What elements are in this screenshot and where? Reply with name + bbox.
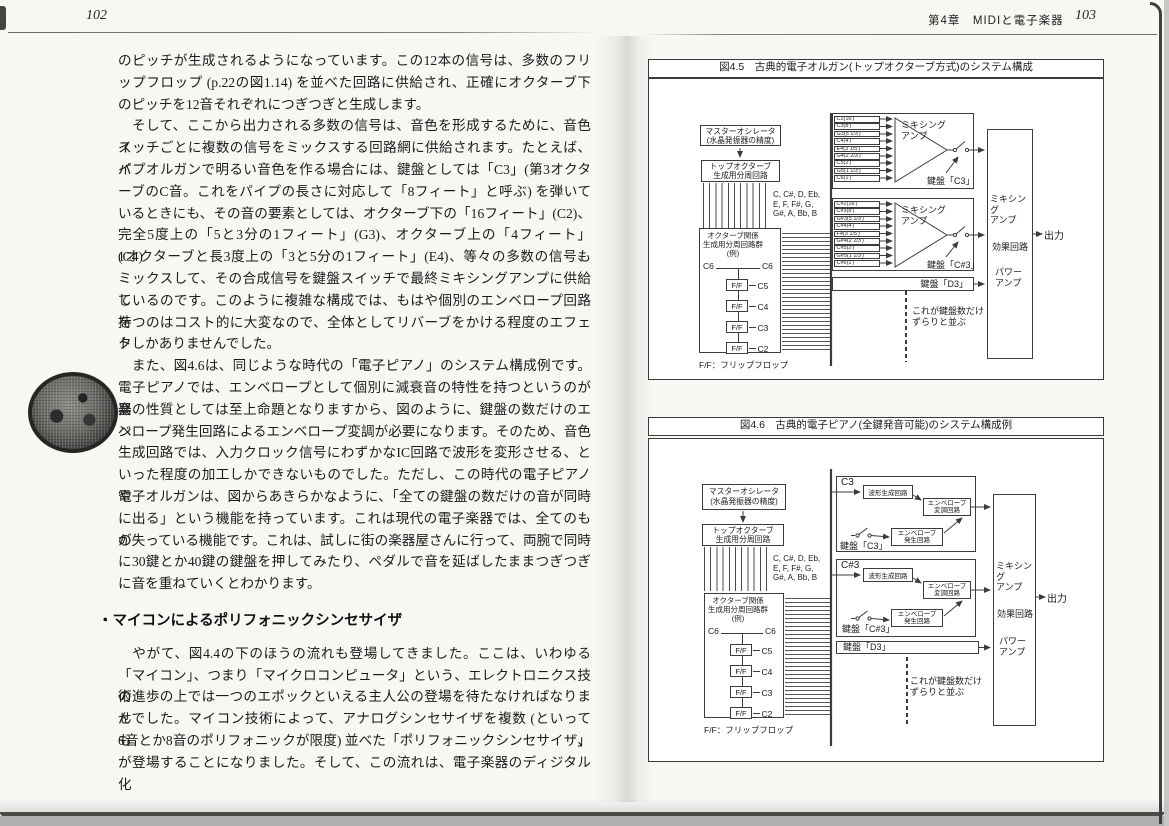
text-line: そして、ここから出力される多数の信号は、音色を形成するために、音色ス [118, 115, 591, 137]
header-rule-left [8, 32, 598, 33]
text-line: んでした。マイコン技術によって、アナログシンセサイザを複数 (といっても、 [118, 708, 591, 730]
master-oscillator-box: マスターオシレータ (水晶発振器の精度) [702, 484, 786, 510]
output-chain-box: ミキシング アンプ 効果回路 パワー アンプ [987, 129, 1033, 359]
signal-box: G#3(5 1/3′) [834, 216, 880, 223]
text-line: ベロープ発生回路によるエンベロープ変調が必要になります。そのため、音色 [118, 421, 591, 443]
effects-label: 効果回路 [992, 240, 1028, 253]
text-line: また、図4.6は、同じような時代の「電子ピアノ」のシステム構成例です。 [118, 355, 591, 377]
scanner-bed-bottom [0, 816, 1169, 826]
signal-box: C#3(8′) [834, 208, 880, 215]
chapter-header: 第4章 MIDIと電子楽器 [928, 12, 1064, 28]
signal-box: G5(1 1/3′) [834, 168, 880, 175]
page-bottom-fade [0, 799, 1169, 812]
fig46-title: 図4.6 古典的電子ピアノ(全鍵発音可能)のシステム構成例 [648, 417, 1104, 436]
flipflop-box: F/F [730, 686, 752, 698]
paragraph-2: そして、ここから出力される多数の信号は、音色を形成するために、音色スイッチごとに… [118, 115, 591, 355]
flipflop-box: F/F [726, 342, 748, 354]
fig45-title: 図4.5 古典的電子オルガン(トップオクターブ方式)のシステム構成 [648, 59, 1104, 78]
signal-box: C3(8′) [834, 123, 880, 130]
text-line: ミックスして、その合成信号を鍵盤スイッチで最終ミキシングアンプに供給し [118, 268, 591, 290]
fig45-frame: マスターオシレータ (水晶発振器の精度) トップオクターブ 生成用分周回路 C,… [648, 78, 1104, 380]
octave-divider-group-box: オクターブ関係 生成用分周回路群 (例) C6 C6 F/F C5 F/F C4… [704, 593, 784, 718]
ff-note: C4 [762, 667, 773, 677]
mixing-amp-label: ミキシング アンプ [990, 194, 1032, 226]
signal-box: E4(3 1/5′) [834, 146, 880, 153]
body-text-column: のピッチが生成されるようになっています。この12本の信号は、多数のフリップフロッ… [118, 50, 591, 774]
mixer2-signal-list: C#2(16′)C#3(8′)G#3(5 1/3′)C#4(4′)F4(3 1/… [834, 201, 880, 268]
text-line: 持つのはコスト的に大変なので、全体としてリバーブをかける程度のエフェク [118, 312, 591, 334]
signal-box: C5(2′) [834, 160, 880, 167]
text-line: に出る」という機能を持っています。これは現代の電子楽器では、全てのもの [118, 508, 591, 530]
ff-top-note: C6 [708, 626, 719, 636]
ff-note: C5 [758, 281, 769, 291]
waveform-gen-box: 波形生成回路 [863, 568, 913, 582]
voice1-note-label: C3 [839, 477, 856, 488]
ff-note: C5 [762, 646, 773, 656]
signal-box: G4(2 2/3′) [834, 153, 880, 160]
ff-note: C3 [762, 688, 773, 698]
section-heading: ・マイコンによるポリフォニックシンセサイザ [98, 611, 591, 633]
signal-box: F4(3 1/5′) [834, 231, 880, 238]
paragraph-3: また、図4.6は、同じような時代の「電子ピアノ」のシステム構成例です。電子ピアノ… [118, 355, 591, 595]
flipflop-box: F/F [726, 300, 748, 312]
mixing-amp-label: ミキシング アンプ [996, 561, 1035, 593]
repeat-note-label: これが鍵盤数だけ ずらりと並ぶ [910, 676, 982, 698]
page-right-edge [1150, 2, 1162, 824]
envelope-gen-box: エンベロープ 発生回路 [891, 528, 943, 546]
text-line: やがて、図4.4の下のほうの流れも登場してきました。ここは、いわゆる [118, 643, 591, 665]
signal-box: C#5(2′) [834, 245, 880, 252]
text-line: 生成回路では、入力クロック信号にわずかなIC回路で波形を変形させる、と [118, 442, 591, 464]
ff-note: C4 [758, 302, 769, 312]
text-line: 電子ピアノでは、エンベロープとして個別に減衰音の特性を持つというのが楽 [118, 377, 591, 399]
note-names-label: C, C#, D, Eb, E, F, F#, G, G#, A, Bb, B [772, 554, 821, 583]
text-line: 器の性質としては至上命題となりますから、図のように、鍵盤の数だけのエン [118, 399, 591, 421]
voice1-key-label: 鍵盤「C3」 [840, 539, 888, 552]
flipflop-box: F/F [730, 707, 752, 719]
signal-box: C#6(1′) [834, 260, 880, 267]
fig46-frame: マスターオシレータ (水晶発振器の精度) トップオクターブ 生成用分周回路 C,… [648, 438, 1104, 762]
header-rule-right [645, 34, 1157, 35]
book-scan: { "left_page": { "page_number": "102", "… [0, 0, 1169, 826]
text-line: に30鍵とか40鍵の鍵盤を押してみたり、ペダルで音を延ばしたままつぎつぎ [118, 551, 591, 573]
text-line: が登場することになりました。そして、この流れは、電子楽器のディジタル化 [118, 752, 591, 774]
page-number-left: 102 [86, 8, 107, 24]
scan-corner-mark [0, 6, 6, 30]
text-line: が失っている機能です。これは、試しに街の楽器屋さんに行って、両腕で同時 [118, 530, 591, 552]
voice2-key-label: 鍵盤「C#3」 [842, 622, 895, 635]
signal-box: G#5(1 1/3′) [834, 253, 880, 260]
envelope-mod-box: エンベロープ 変調回路 [923, 498, 971, 516]
signal-box: G3(5 1/3′) [834, 131, 880, 138]
power-amp-label: パワー アンプ [999, 636, 1026, 657]
page-number-right: 103 [1075, 8, 1096, 24]
flipflop-box: F/F [726, 321, 748, 333]
text-line: トしかありませんでした。 [118, 333, 591, 355]
text-line: 完全5度上の「5と3分の1フィート」(G3)、オクターブ上の「4フィート」(C4… [118, 224, 591, 246]
signal-box: C#4(4′) [834, 223, 880, 230]
top-octave-divider-box: トップオクターブ 生成用分周回路 [702, 524, 784, 546]
text-line: 「マイコン」、つまり「マイクロコンピュータ」という、エレクトロニクス技術 [118, 665, 591, 687]
note-names-label: C, C#, D, Eb, E, F, F#, G, G#, A, Bb, B [772, 190, 821, 219]
text-line: いった程度の加工しかできないものでした。ただし、この時代の電子ピアノや [118, 464, 591, 486]
text-line: に音を重ねていくとわかります。 [118, 573, 591, 595]
master-oscillator-box: マスターオシレータ (水晶発振器の精度) [700, 125, 781, 146]
text-line: ップフロップ (p.22の図1.14) を並べた回路に供給され、正確にオクターブ… [118, 72, 591, 94]
text-line: 6音とか8音のポリフォニックが限度) 並べた「ポリフォニックシンセサイザ」 [118, 730, 591, 752]
mixer1-key-label: 鍵盤「C3」 [927, 174, 975, 187]
envelope-mod-box: エンベロープ 変調回路 [923, 581, 971, 599]
ff-note: C2 [758, 344, 769, 354]
text-line: ーブのC音。これをパイプの長さに対応して「8フィート」と呼ぶ) を弾いて [118, 181, 591, 203]
paragraph-4: やがて、図4.4の下のほうの流れも登場してきました。ここは、いわゆる「マイコン」… [118, 643, 591, 774]
octave-divider-group-label: オクターブ関係 生成用分周回路群 (例) [708, 596, 768, 623]
flipflop-box: F/F [726, 279, 748, 291]
signal-box: C6(1′) [834, 175, 880, 182]
signal-box: C4(4′) [834, 138, 880, 145]
output-label: 出力 [1047, 590, 1067, 605]
ff-top-note: C6 [703, 261, 714, 271]
key-d3-bar: 鍵盤「D3」 [832, 277, 974, 291]
ff-note: C3 [758, 323, 769, 333]
scanner-bed-right [1164, 0, 1169, 826]
flipflop-box: F/F [730, 644, 752, 656]
envelope-gen-box: エンベロープ 発生回路 [891, 609, 943, 627]
mixer1-signal-list: C2(16′)C3(8′)G3(5 1/3′)C4(4′)E4(3 1/5′)G… [834, 116, 880, 183]
text-line: イプオルガンで明るい音色を作る場合には、鍵盤としては「C3」(第3オクタ [118, 159, 591, 181]
waveform-gen-box: 波形生成回路 [863, 485, 913, 499]
octave-divider-group-label: オクターブ関係 生成用分周回路群 (例) [703, 231, 763, 258]
ff-caption: F/F：フリップフロップ [699, 359, 788, 371]
ff-top-note-out: C6 [765, 626, 776, 636]
text-line: 電子オルガンは、図からあきらかなように、「全ての鍵盤の数だけの音が同時 [118, 486, 591, 508]
text-line: の進歩の上では一つのエポックといえる主人公の登場を待たなければなりませ [118, 686, 591, 708]
text-line: いるときにも、その音の要素としては、オクターブ下の「16フィート」(C2)、 [118, 203, 591, 225]
octave-divider-group-box: オクターブ関係 生成用分周回路群 (例) C6 C6 F/F C5 F/F C4… [699, 228, 781, 353]
voice2-note-label: C#3 [839, 560, 861, 571]
margin-photo [28, 372, 118, 453]
paragraph-1: のピッチが生成されるようになっています。この12本の信号は、多数のフリップフロッ… [118, 50, 591, 115]
ff-note: C2 [762, 709, 773, 719]
signal-box: C2(16′) [834, 116, 880, 123]
signal-box: G#4(2 2/3′) [834, 238, 880, 245]
power-amp-label: パワー アンプ [995, 267, 1022, 288]
top-octave-divider-box: トップオクターブ 生成用分周回路 [701, 160, 780, 182]
flipflop-box: F/F [730, 665, 752, 677]
key-d3-bar: 鍵盤「D3」 [836, 641, 979, 654]
repeat-note-label: これが鍵盤数だけ ずらりと並ぶ [912, 306, 984, 328]
ff-top-note-out: C6 [762, 261, 773, 271]
mixer1-amp-label: ミキシング アンプ [901, 120, 946, 141]
text-line: 1オクターブと長3度上の「3と5分の1フィート」(E4)、等々の多数の信号も [118, 246, 591, 268]
effects-label: 効果回路 [997, 607, 1033, 620]
text-line: ているのです。このように複雑な構成では、もはや個別のエンベロープ回路を [118, 290, 591, 312]
page-gutter-shadow [594, 36, 654, 802]
mixer2-amp-label: ミキシング アンプ [901, 205, 946, 226]
output-chain-box: ミキシング アンプ 効果回路 パワー アンプ [993, 494, 1036, 726]
ff-caption: F/F：フリップフロップ [704, 724, 793, 736]
text-line: イッチごとに複数の信号をミックスする回路網に供給されます。たとえば、パ [118, 137, 591, 159]
output-label: 出力 [1044, 227, 1064, 242]
signal-box: C#2(16′) [834, 201, 880, 208]
text-line: のピッチが生成されるようになっています。この12本の信号は、多数のフリ [118, 50, 591, 72]
mixer2-key-label: 鍵盤「C#3」 [927, 258, 980, 271]
text-line: のピッチを12音それぞれにつぎつぎと生成します。 [118, 94, 591, 116]
